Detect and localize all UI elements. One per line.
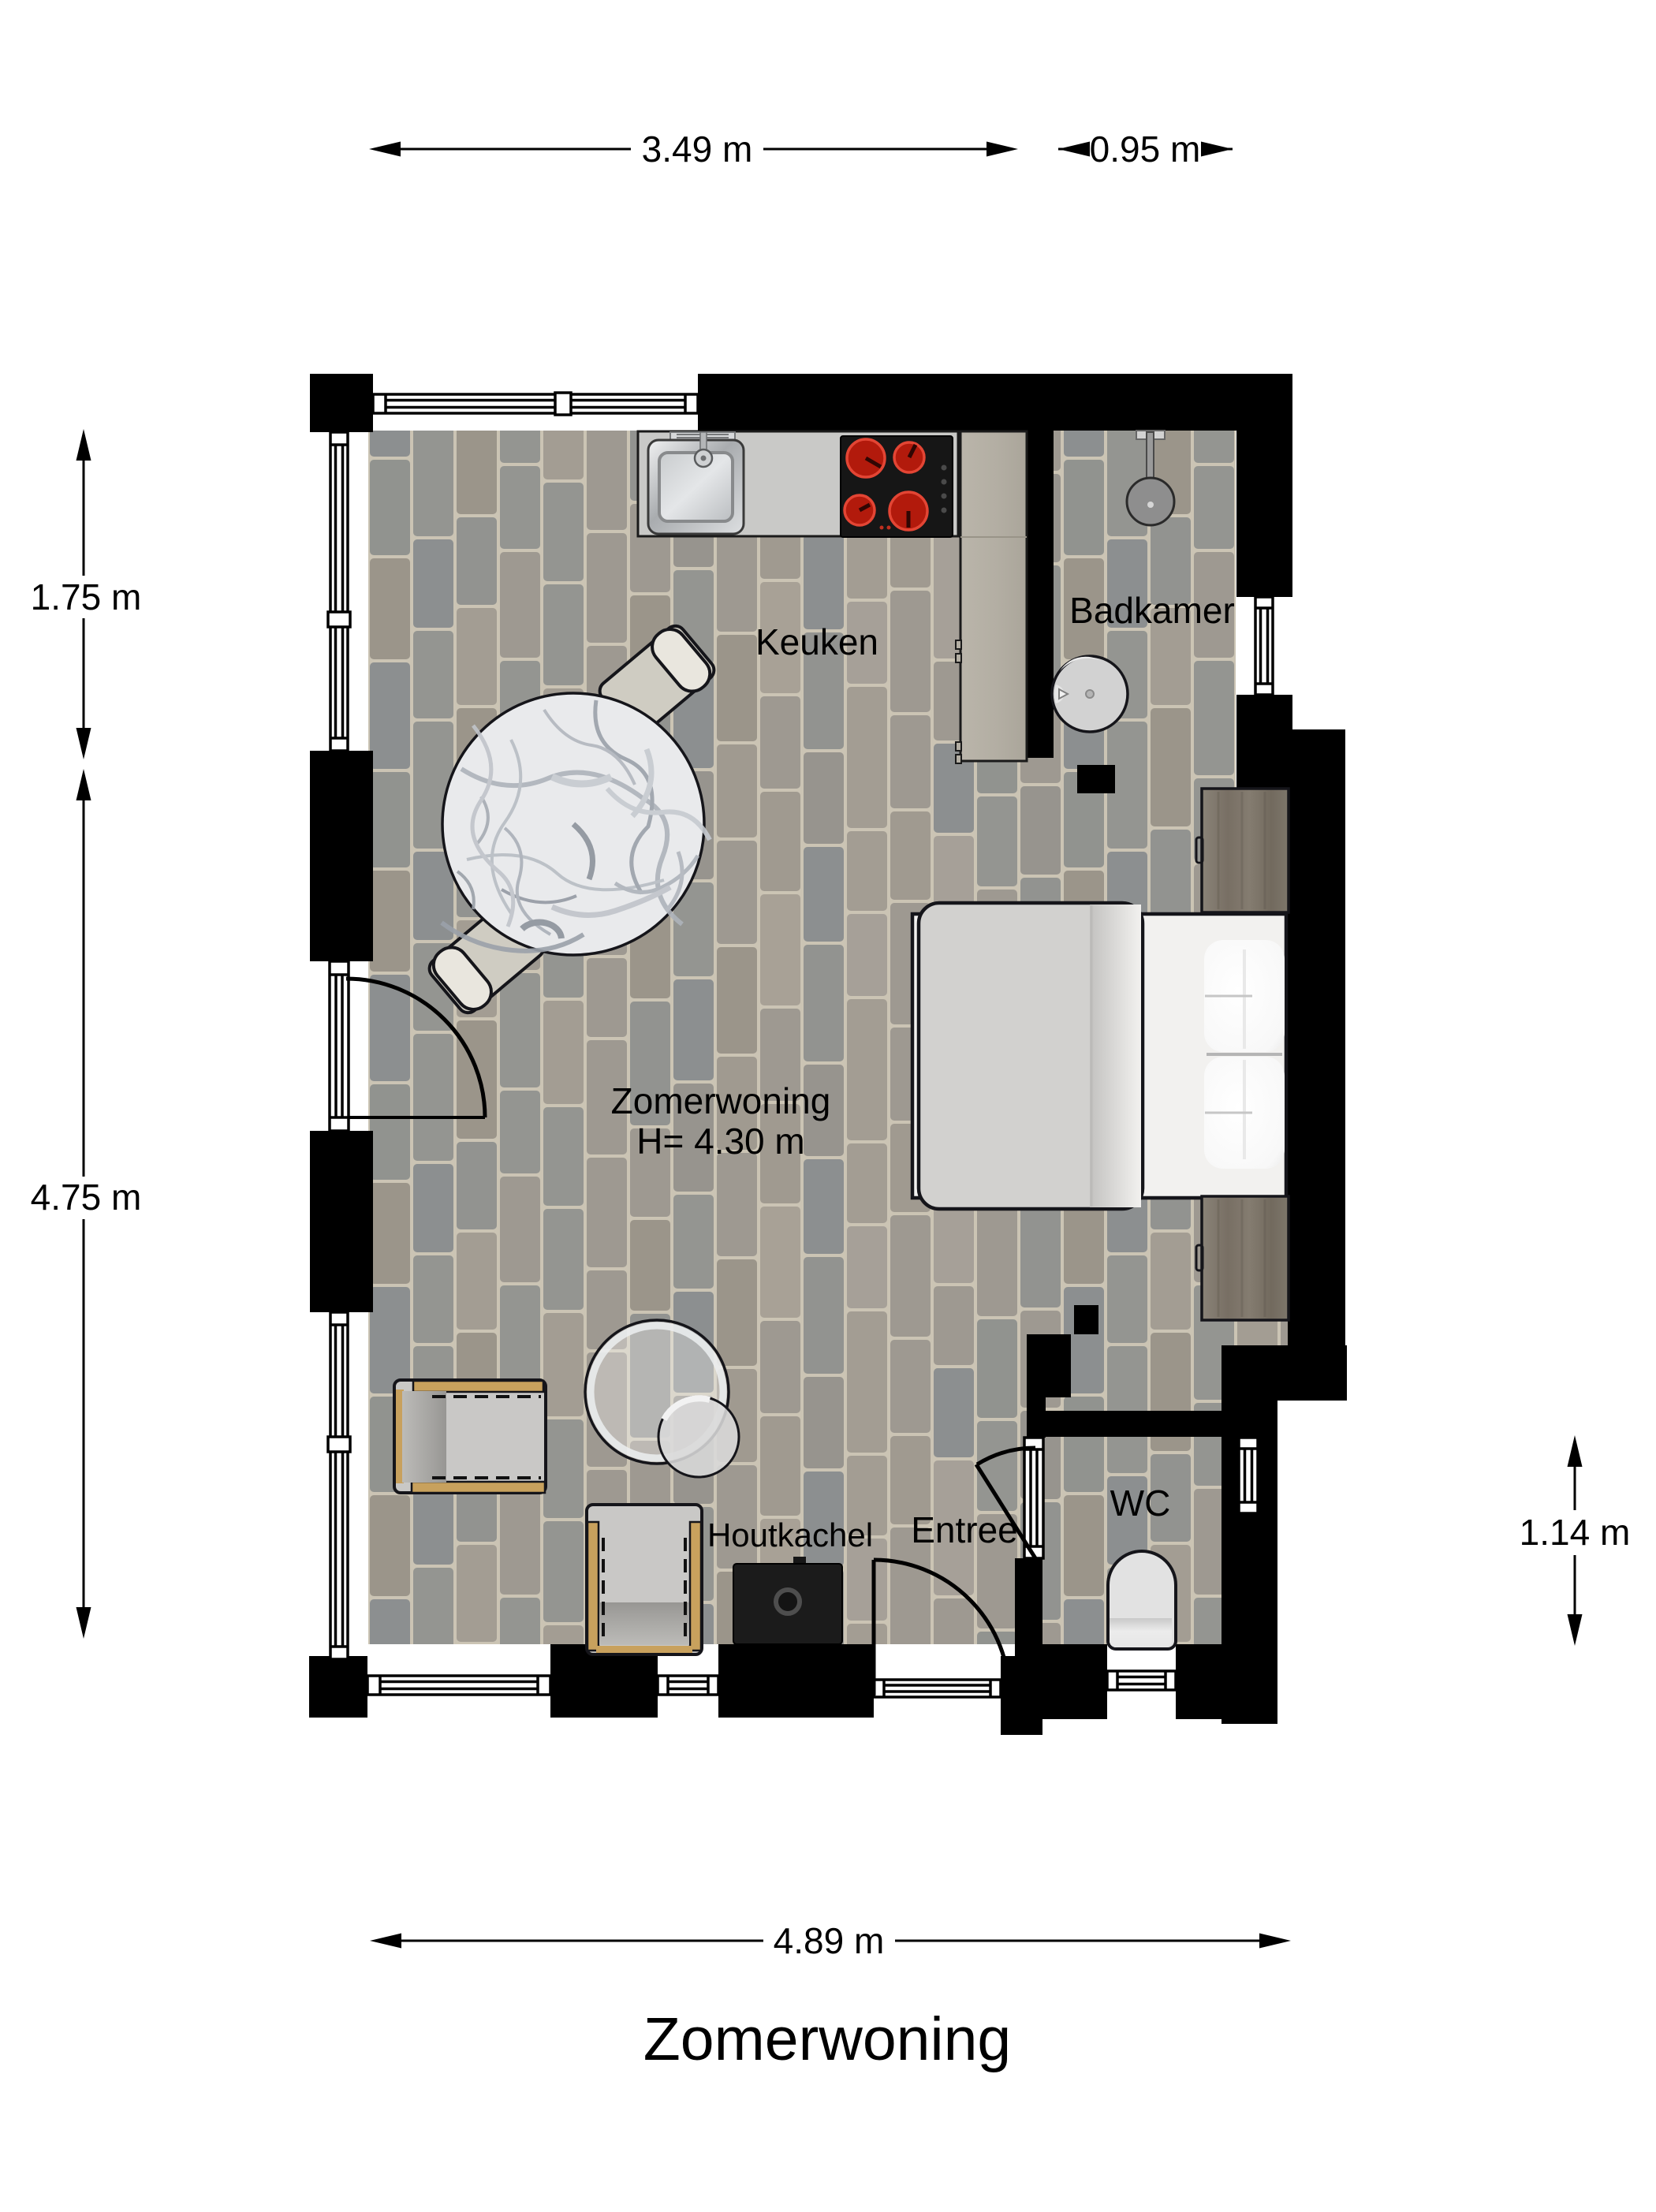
- svg-text:3.49 m: 3.49 m: [642, 129, 753, 170]
- svg-text:Keuken: Keuken: [755, 621, 878, 662]
- svg-text:Badkamer: Badkamer: [1069, 590, 1235, 631]
- svg-text:Zomerwoning: Zomerwoning: [643, 2005, 1011, 2073]
- svg-text:1.14 m: 1.14 m: [1520, 1512, 1631, 1553]
- svg-text:Houtkachel: Houtkachel: [707, 1516, 873, 1554]
- svg-text:WC: WC: [1110, 1483, 1171, 1524]
- svg-text:4.75 m: 4.75 m: [31, 1177, 142, 1218]
- svg-text:4.89 m: 4.89 m: [774, 1920, 885, 1961]
- svg-text:H= 4.30 m: H= 4.30 m: [636, 1121, 805, 1162]
- svg-text:Entree: Entree: [911, 1509, 1018, 1550]
- svg-text:Zomerwoning: Zomerwoning: [611, 1080, 831, 1121]
- svg-text:0.95 m: 0.95 m: [1090, 129, 1201, 170]
- svg-text:1.75 m: 1.75 m: [31, 576, 142, 617]
